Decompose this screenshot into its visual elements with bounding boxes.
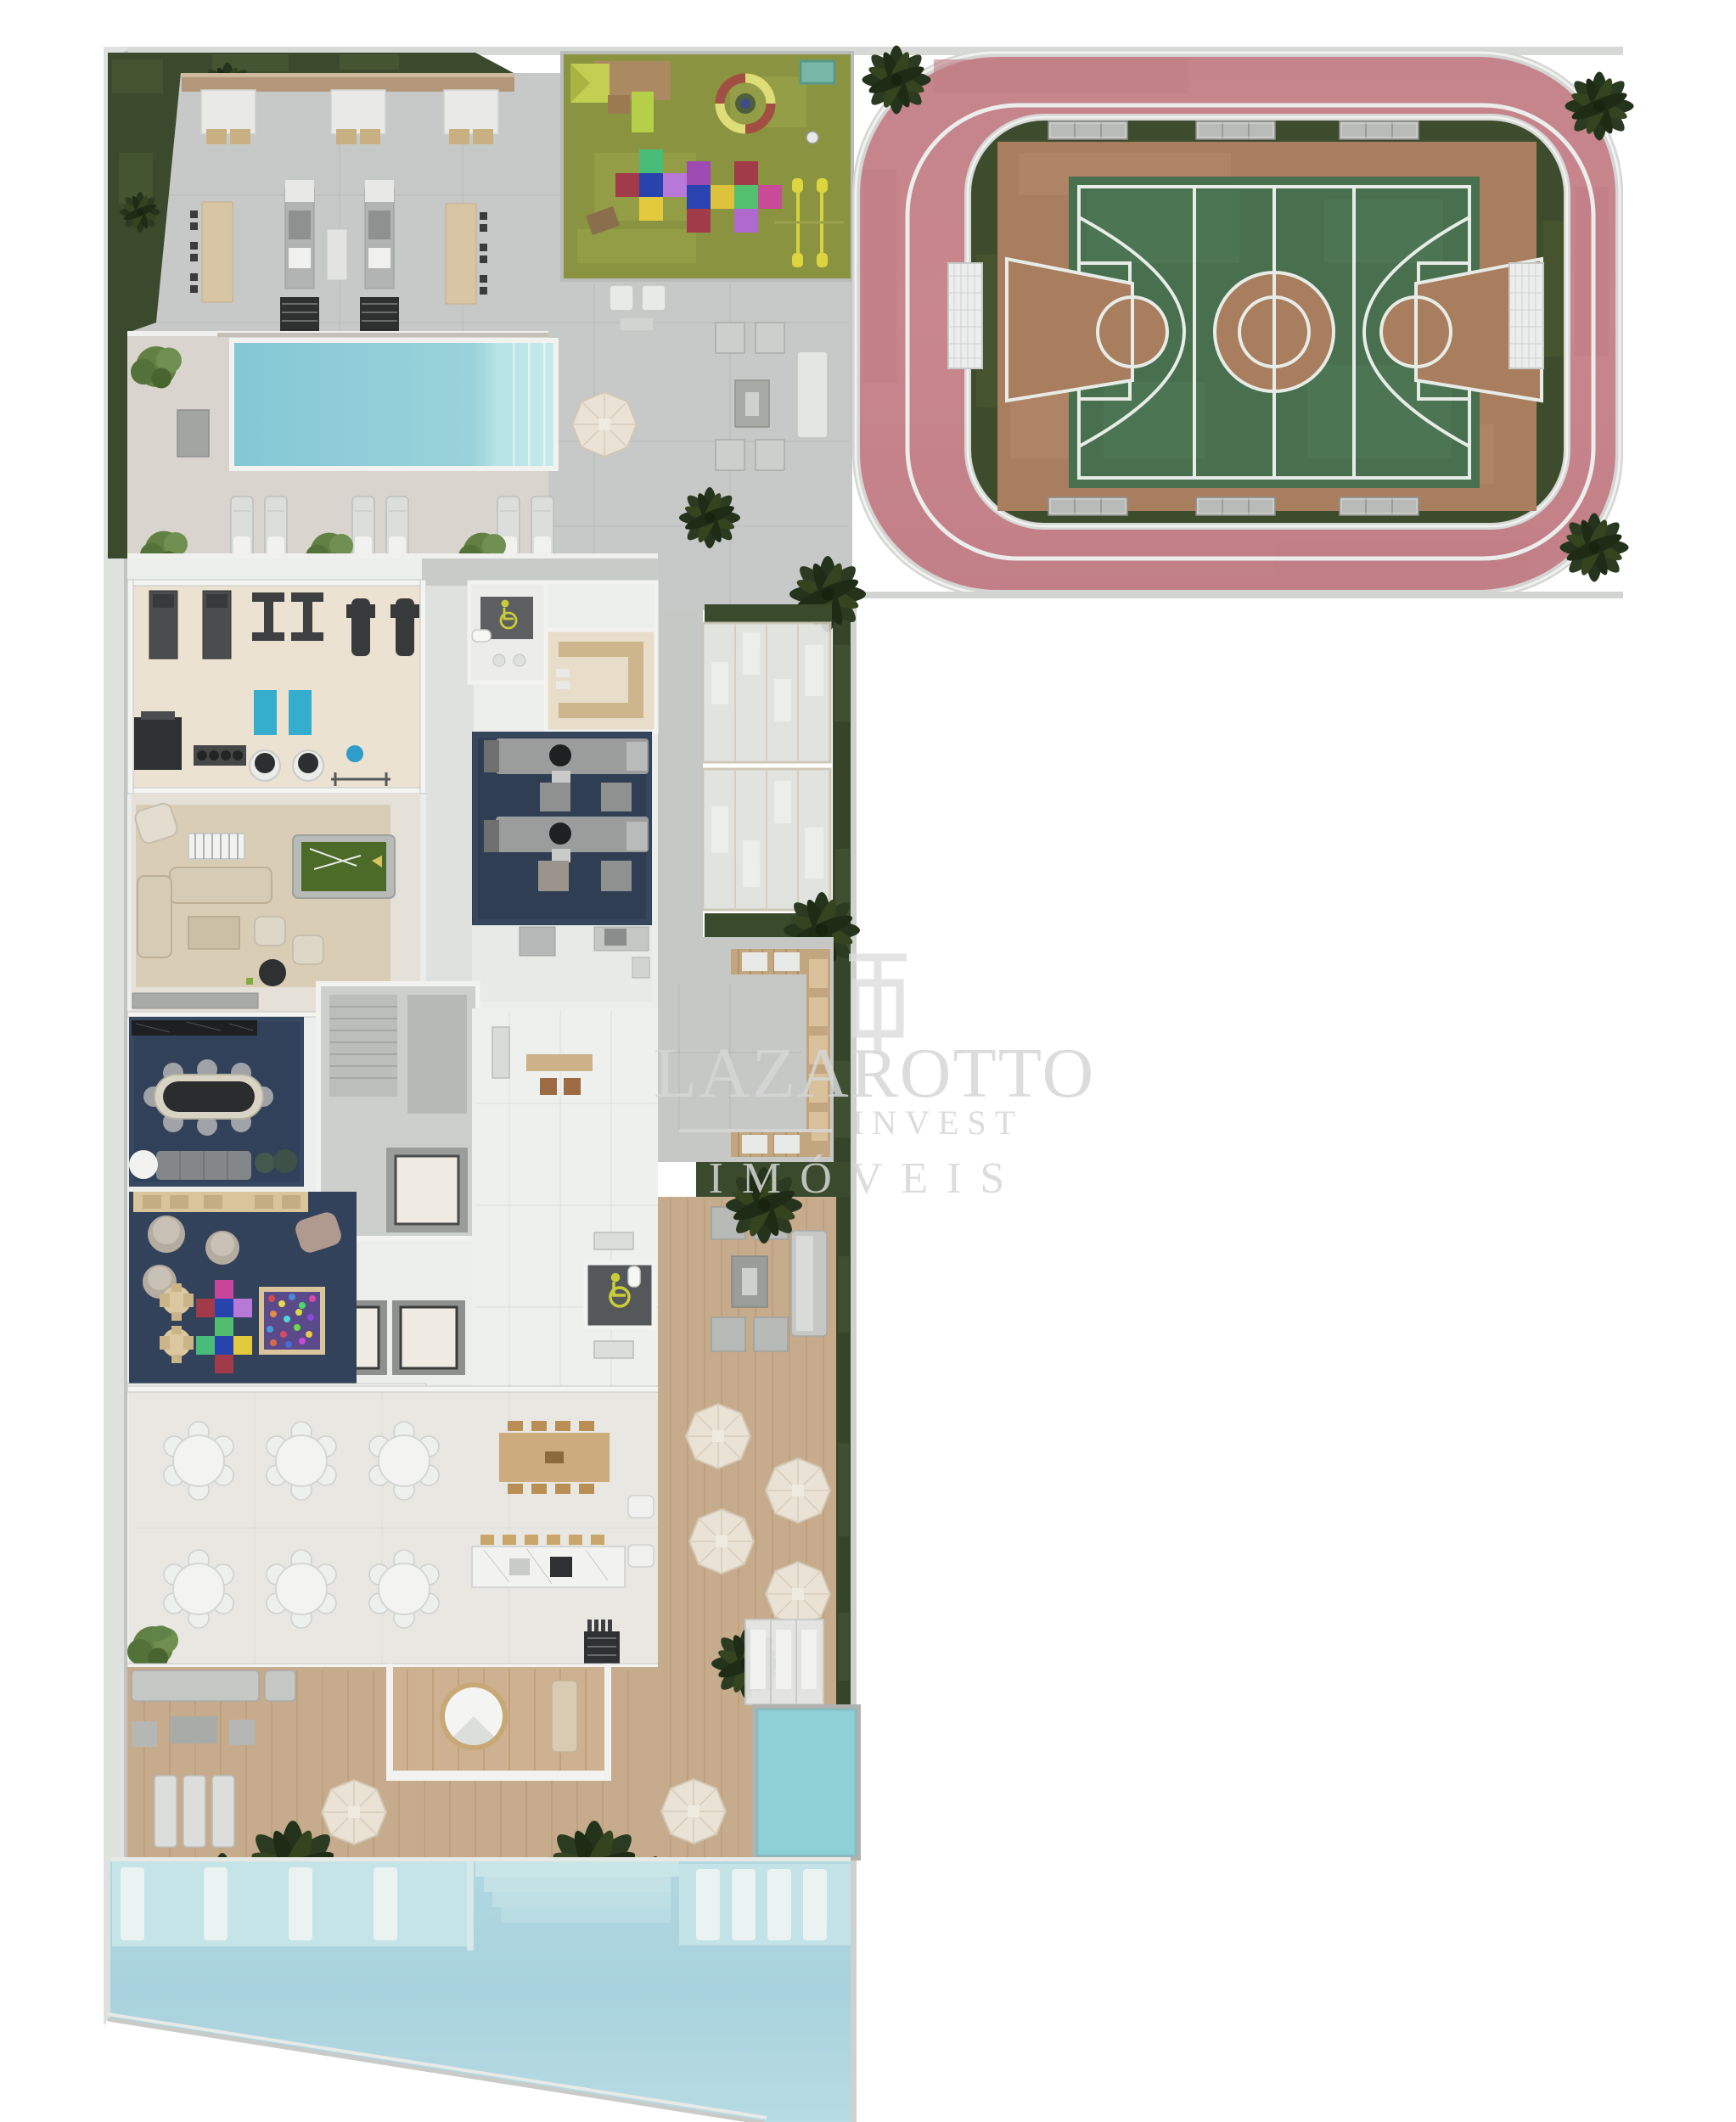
svg-text:INVEST: INVEST bbox=[852, 1103, 1024, 1142]
svg-text:IMÓVEIS: IMÓVEIS bbox=[709, 1154, 1024, 1203]
svg-text:LAZAROTTO: LAZAROTTO bbox=[654, 1034, 1095, 1113]
